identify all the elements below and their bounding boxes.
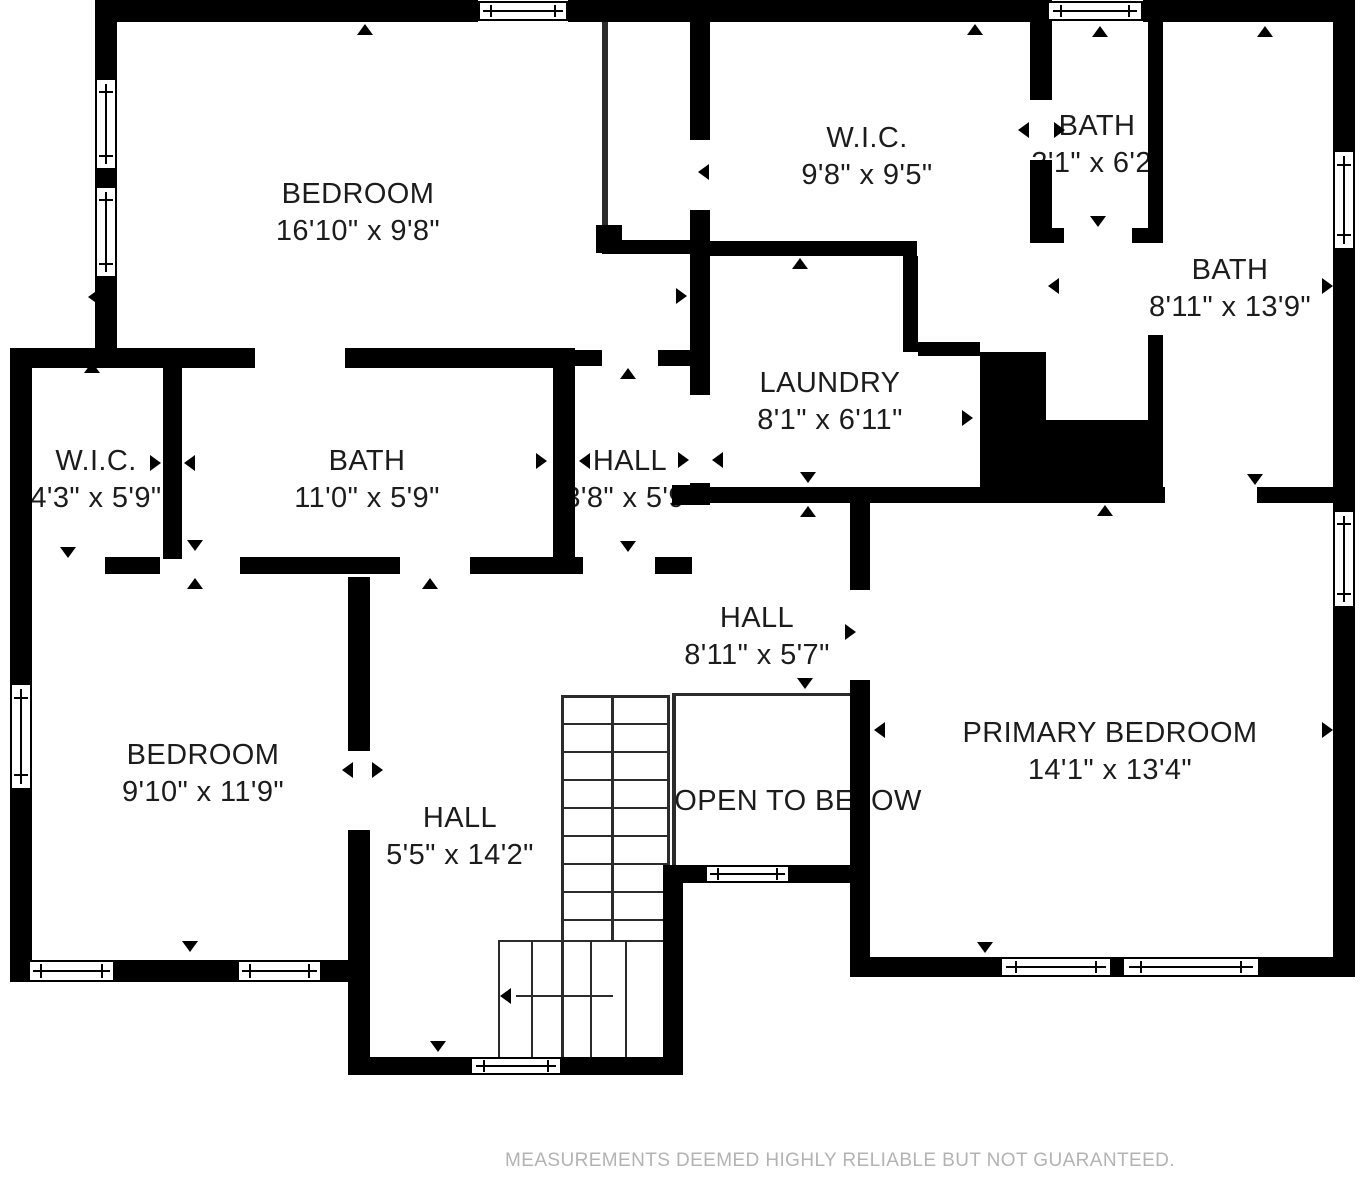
door-arrow-icon	[184, 455, 195, 471]
wall-segment	[663, 868, 683, 1075]
door-arrow-icon	[536, 453, 547, 469]
door-arrow-icon	[357, 24, 373, 35]
wall-segment	[117, 348, 255, 368]
wall-segment	[10, 960, 28, 982]
stair-tread	[561, 807, 670, 809]
door-arrow-icon	[792, 258, 808, 269]
door-arrow-icon	[1090, 216, 1106, 227]
room-dims: 8'1" x 6'11"	[757, 402, 903, 439]
stair-tread	[561, 751, 670, 753]
wall-segment	[470, 557, 583, 574]
wall-segment	[575, 350, 602, 366]
wall-segment	[105, 557, 160, 574]
room-dims: 8'11" x 13'9"	[1149, 289, 1311, 326]
stair-tread	[561, 723, 670, 725]
room-name: BEDROOM	[276, 176, 440, 213]
stair-tread	[625, 940, 627, 1057]
wall-segment	[1257, 487, 1355, 503]
wall-segment	[10, 348, 32, 683]
wall-segment	[568, 0, 1047, 22]
stair-tread	[531, 940, 533, 1057]
room-label-bath-large: BATH 8'11" x 13'9"	[1149, 252, 1311, 326]
door-arrow-icon	[430, 1041, 446, 1052]
wall-segment	[672, 485, 703, 505]
window-marker	[1333, 510, 1355, 608]
room-label-wic-large: W.I.C. 9'8" x 9'5"	[801, 120, 932, 194]
shaft	[980, 352, 1046, 503]
wall-segment	[1148, 335, 1163, 503]
room-dims: 9'8" x 9'5"	[801, 157, 932, 194]
room-label-wic-small: W.I.C. 4'3" x 5'9"	[30, 443, 161, 517]
wall-segment	[1333, 250, 1355, 510]
door-arrow-icon	[1054, 122, 1065, 138]
room-dims: 14'1" x 13'4"	[963, 752, 1258, 789]
room-dims: 5'5" x 14'2"	[386, 837, 534, 874]
door-arrow-icon	[620, 368, 636, 379]
wall-segment	[602, 22, 608, 225]
wall-segment	[790, 865, 850, 883]
stair-direction-arrow-icon	[500, 988, 511, 1004]
wall-segment	[1333, 608, 1355, 977]
open-to-below-edge	[672, 693, 850, 696]
window-marker	[470, 1057, 562, 1075]
wall-segment	[163, 362, 182, 559]
window-marker	[28, 960, 115, 982]
window-marker	[237, 960, 322, 982]
wall-segment	[345, 348, 455, 368]
stair-tread	[590, 940, 592, 1057]
room-name: BATH	[294, 443, 440, 480]
wall-segment	[850, 680, 870, 977]
room-dims: 9'10" x 11'9"	[122, 774, 284, 811]
stair-edge	[561, 695, 564, 1057]
stair-edge	[667, 695, 670, 868]
door-arrow-icon	[1247, 474, 1263, 485]
stair-divider	[611, 695, 614, 940]
door-arrow-icon	[1018, 122, 1029, 138]
wall-segment	[115, 960, 237, 982]
wall-segment	[1148, 22, 1163, 243]
room-label-laundry: LAUNDRY 8'1" x 6'11"	[757, 365, 903, 439]
door-arrow-icon	[16, 455, 27, 471]
door-arrow-icon	[1048, 278, 1059, 294]
stair-tread	[561, 835, 670, 837]
door-arrow-icon	[422, 578, 438, 589]
room-dims: 8'11" x 5'7"	[684, 637, 830, 674]
room-label-hall-upper: HALL 8'11" x 5'7"	[684, 600, 830, 674]
door-arrow-icon	[797, 678, 813, 689]
wall-segment	[95, 0, 478, 22]
wall-segment	[658, 350, 692, 366]
stair-tread	[561, 863, 670, 865]
wall-segment	[690, 22, 710, 140]
stair-direction-line	[516, 995, 613, 997]
window-marker	[95, 186, 117, 278]
door-arrow-icon	[845, 624, 856, 640]
wall-segment	[1030, 160, 1052, 230]
floor-plan: BEDROOM 16'10" x 9'8" W.I.C. 9'8" x 9'5"…	[0, 0, 1372, 1198]
stair-landing-edge	[498, 940, 670, 942]
wall-segment	[703, 241, 917, 256]
door-arrow-icon	[1322, 722, 1333, 738]
wall-segment	[918, 342, 980, 356]
door-arrow-icon	[1257, 26, 1273, 37]
window-marker	[705, 865, 790, 883]
room-name: BATH	[1031, 108, 1162, 145]
room-name: BEDROOM	[122, 737, 284, 774]
stair-tread	[561, 891, 670, 893]
window-marker	[1000, 957, 1112, 977]
wall-segment	[553, 362, 575, 559]
disclaimer-text: MEASUREMENTS DEEMED HIGHLY RELIABLE BUT …	[505, 1150, 1175, 1172]
room-dims: 11'0" x 5'9"	[294, 480, 440, 517]
wall-segment	[240, 557, 400, 574]
door-arrow-icon	[977, 942, 993, 953]
door-arrow-icon	[84, 362, 100, 373]
door-arrow-icon	[187, 540, 203, 551]
door-arrow-icon	[60, 547, 76, 558]
wall-segment	[1333, 0, 1355, 150]
window-marker	[1047, 1, 1143, 21]
door-arrow-icon	[967, 24, 983, 35]
stair-tread	[561, 919, 670, 921]
door-arrow-icon	[342, 762, 353, 778]
room-name: W.I.C.	[30, 443, 161, 480]
wall-segment	[703, 487, 1165, 503]
door-arrow-icon	[874, 722, 885, 738]
room-label-bedroom-top: BEDROOM 16'10" x 9'8"	[276, 176, 440, 250]
door-arrow-icon	[187, 578, 203, 589]
door-arrow-icon	[1092, 26, 1108, 37]
window-marker	[1333, 150, 1355, 250]
room-name: BATH	[1149, 252, 1311, 289]
wall-segment	[348, 577, 370, 751]
room-dims: 16'10" x 9'8"	[276, 213, 440, 250]
room-label-bath-middle: BATH 11'0" x 5'9"	[294, 443, 440, 517]
wall-segment	[10, 790, 32, 982]
door-arrow-icon	[962, 410, 973, 426]
door-arrow-icon	[182, 941, 198, 952]
door-arrow-icon	[372, 762, 383, 778]
door-arrow-icon	[712, 452, 723, 468]
room-name: LAUNDRY	[757, 365, 903, 402]
door-arrow-icon	[698, 164, 709, 180]
door-arrow-icon	[1097, 505, 1113, 516]
wall-segment	[562, 1057, 683, 1075]
wall-segment	[95, 170, 117, 186]
door-arrow-icon	[800, 506, 816, 517]
stair-edge	[561, 695, 670, 698]
wall-segment	[903, 256, 918, 352]
open-to-below-edge	[672, 693, 676, 865]
door-arrow-icon	[678, 452, 689, 468]
stair-tread	[561, 779, 670, 781]
room-name: HALL	[386, 800, 534, 837]
window-marker	[478, 1, 568, 21]
window-marker	[10, 683, 32, 790]
wall-segment	[602, 240, 692, 254]
room-name: W.I.C.	[801, 120, 932, 157]
door-arrow-icon	[150, 455, 161, 471]
wall-segment	[1143, 0, 1355, 22]
room-label-hall-stairs: HALL 5'5" x 14'2"	[386, 800, 534, 874]
room-label-open-to-below: OPEN TO BELOW	[674, 783, 921, 820]
room-name: PRIMARY BEDROOM	[963, 715, 1258, 752]
wall-segment	[95, 0, 117, 78]
door-arrow-icon	[579, 453, 590, 469]
room-dims: 4'3" x 5'9"	[30, 480, 161, 517]
door-arrow-icon	[800, 472, 816, 483]
wall-segment	[850, 503, 870, 590]
wall-segment	[1030, 228, 1064, 243]
wall-segment	[850, 957, 1000, 977]
door-arrow-icon	[1322, 278, 1333, 294]
wall-segment	[1260, 957, 1355, 977]
door-arrow-icon	[620, 541, 636, 552]
wall-segment	[348, 830, 370, 1075]
window-marker	[1122, 957, 1260, 977]
wall-segment	[1112, 957, 1122, 977]
door-arrow-icon	[676, 288, 687, 304]
room-name: OPEN TO BELOW	[674, 783, 921, 820]
wall-segment	[690, 210, 710, 395]
wall-segment	[655, 557, 692, 574]
room-label-primary-bedroom: PRIMARY BEDROOM 14'1" x 13'4"	[963, 715, 1258, 789]
wall-segment	[322, 960, 360, 982]
room-label-bedroom-left: BEDROOM 9'10" x 11'9"	[122, 737, 284, 811]
room-name: HALL	[684, 600, 830, 637]
window-marker	[95, 78, 117, 170]
door-arrow-icon	[88, 289, 99, 305]
